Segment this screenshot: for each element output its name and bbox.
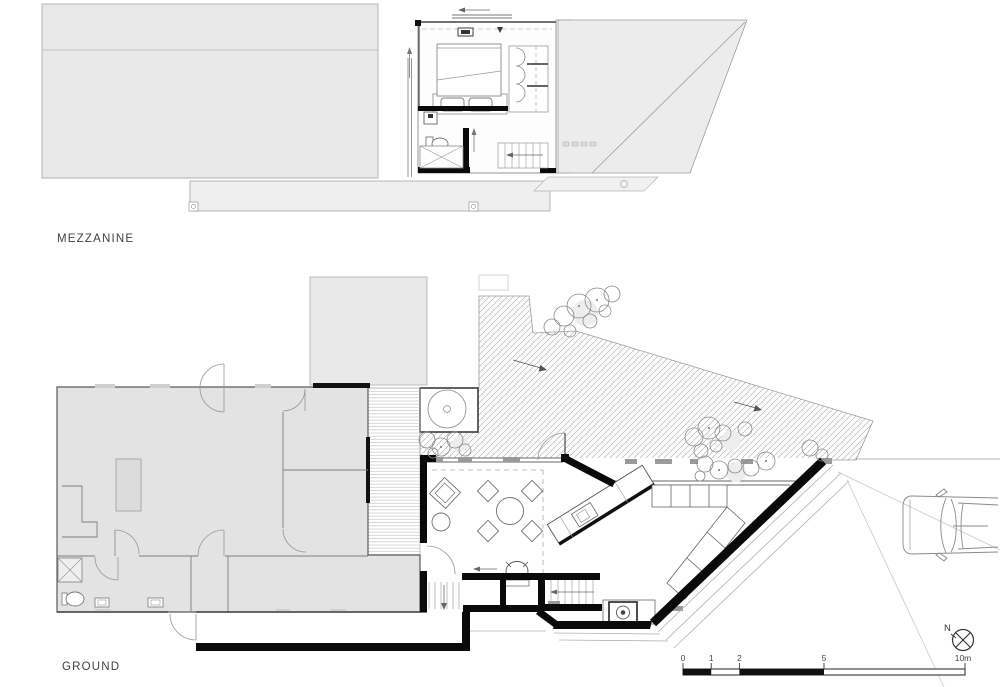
up-arrow-icon [407,47,412,54]
wardrobe [509,46,548,112]
slide-direction-arrow-icon [458,8,465,13]
existing-roof [42,4,378,178]
car-icon [903,489,998,561]
toilet-icon [66,592,84,606]
bathroom-wall [463,128,469,173]
new-roof-hatched [420,296,873,460]
wall-segment [540,168,556,173]
ground-plan-title: GROUND [62,661,120,673]
deck-walkway [368,388,420,555]
bathroom-wall [418,106,508,111]
north-arrow: N [944,623,974,651]
bed [433,44,507,114]
mezzanine-plan-title: MEZZANINE [57,233,134,245]
mezzanine-stairs [498,143,548,168]
scale-label-0: 0 [681,653,686,663]
car-mirror [936,489,947,497]
dining-table-icon [497,498,524,525]
mezzanine-plan: MEZZANINE [42,4,747,245]
side-table-icon [432,513,450,531]
garage-roof [310,277,427,385]
wall-segment [553,621,652,629]
floor-plan-sheet: MEZZANINE [0,0,1000,687]
vanity-icon [95,598,109,607]
new-roof [534,20,747,191]
column-marker [415,20,421,26]
tap-icon [428,114,433,118]
wall-vent-core [461,30,470,34]
existing-wall-dark [313,383,370,388]
water-tank [420,388,478,432]
shower-icon [420,146,463,168]
privacy-screen [407,47,412,177]
scale-label-5: 5 [822,653,827,663]
sliding-door [452,8,512,19]
north-label: N [944,623,951,634]
car-mirror [936,553,947,561]
mezzanine-balcony [189,181,550,211]
scale-label-2: 2 [737,653,742,663]
scale-ticks [683,663,965,669]
scale-bar: 0 1 2 5 10m [681,653,972,675]
scale-label-1: 1 [709,653,714,663]
neighbour-structure [479,275,508,290]
plan-drawing-canvas: MEZZANINE [0,0,1000,687]
mezzanine-bedroom [407,8,556,178]
vanity-icon [148,598,163,607]
table [116,459,141,511]
scale-label-10m: 10m [955,653,972,663]
ground-plan: GROUND [57,275,1000,687]
